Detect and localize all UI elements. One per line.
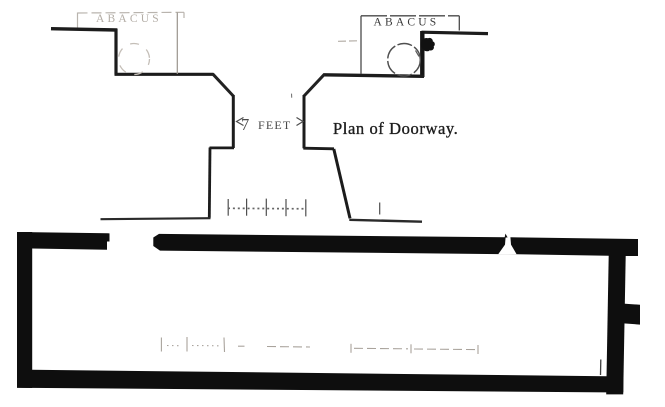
svg-text:ABACUS: ABACUS xyxy=(374,17,440,29)
svg-text:FEET: FEET xyxy=(258,118,291,132)
svg-text:ABACUS: ABACUS xyxy=(96,13,162,25)
svg-text:7: 7 xyxy=(241,115,249,134)
svg-text:Plan of Doorway.: Plan of Doorway. xyxy=(333,119,458,138)
